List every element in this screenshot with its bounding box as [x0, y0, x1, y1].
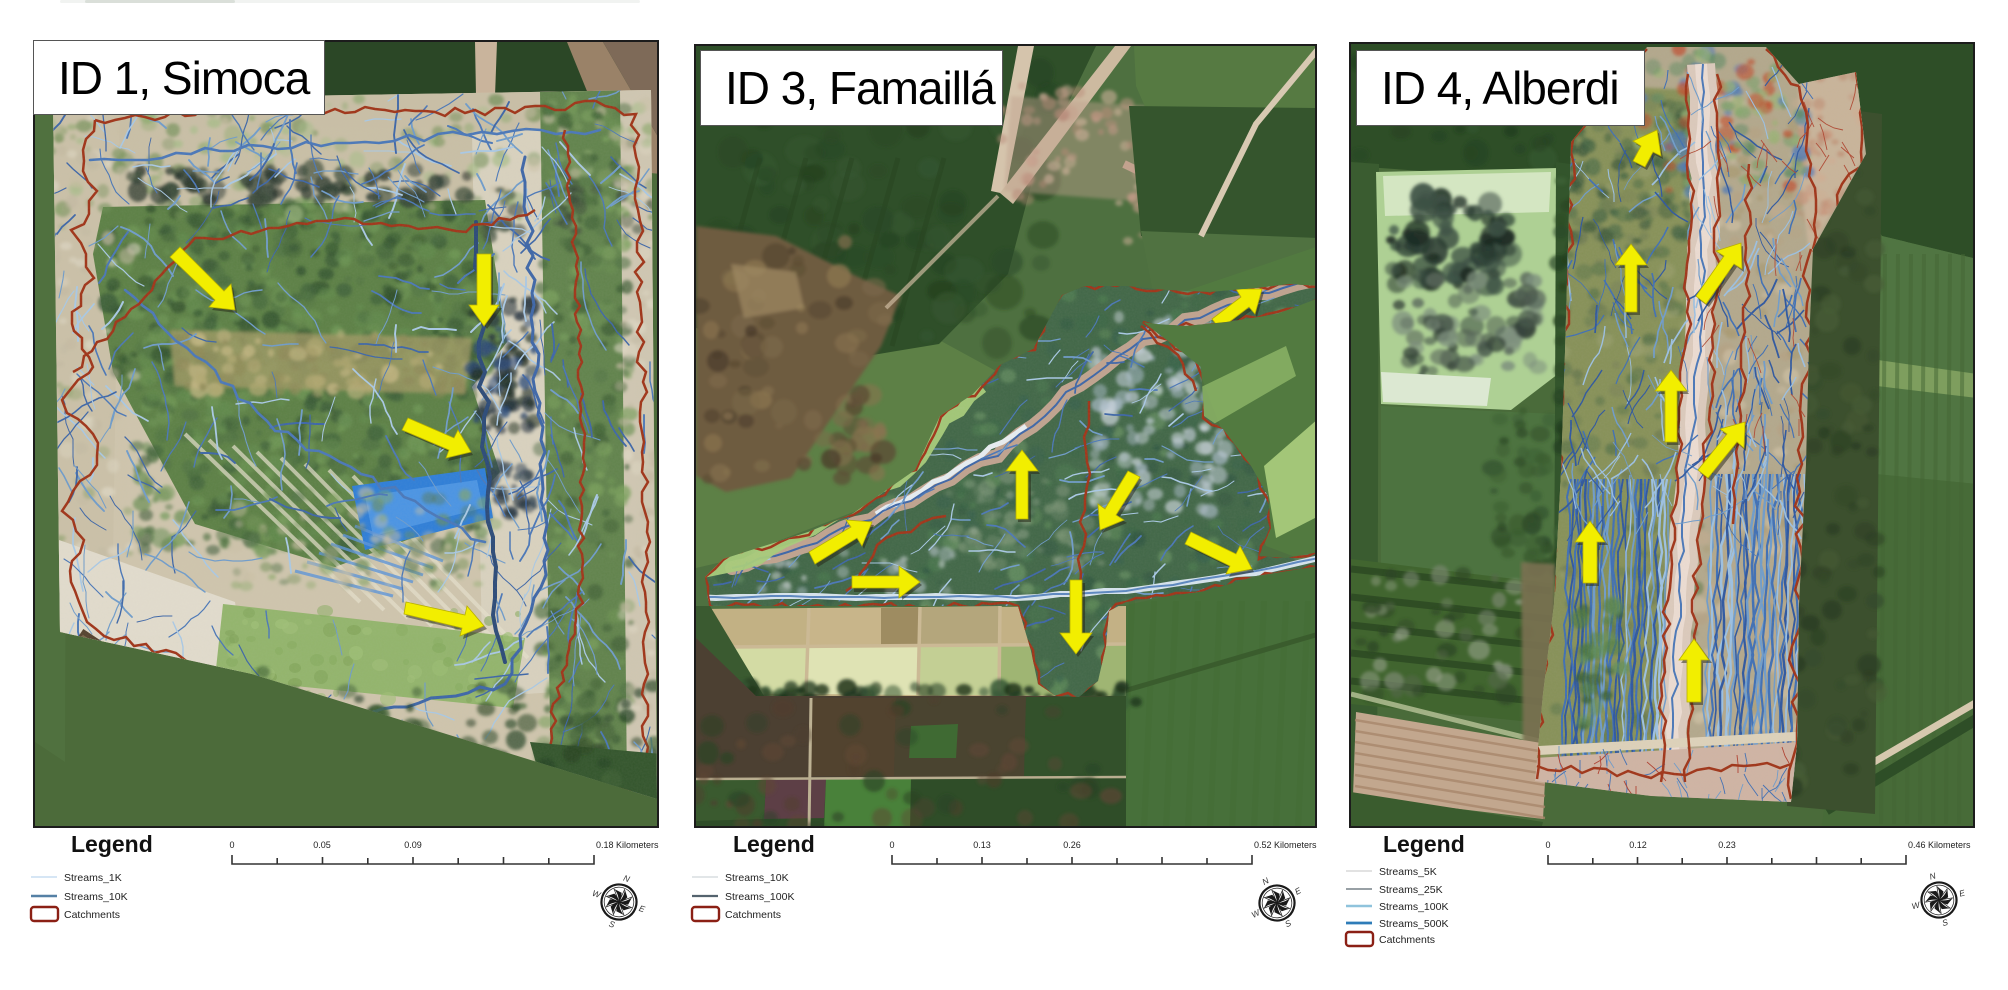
svg-text:Streams_5K: Streams_5K — [1379, 866, 1437, 878]
svg-text:Catchments: Catchments — [725, 909, 781, 921]
svg-text:Streams_1K: Streams_1K — [64, 872, 122, 884]
svg-text:0.52 Kilometers: 0.52 Kilometers — [1254, 840, 1317, 850]
svg-text:0: 0 — [1545, 840, 1550, 850]
svg-text:N: N — [1928, 870, 1937, 881]
svg-text:0: 0 — [229, 840, 234, 850]
svg-text:0.05: 0.05 — [313, 840, 331, 850]
svg-text:S: S — [1283, 918, 1293, 930]
svg-text:W: W — [591, 888, 603, 900]
svg-text:0.46 Kilometers: 0.46 Kilometers — [1908, 840, 1971, 850]
svg-text:Streams_10K: Streams_10K — [725, 872, 789, 884]
svg-text:S: S — [1941, 917, 1949, 928]
svg-text:0.23: 0.23 — [1718, 840, 1736, 850]
svg-text:0.12: 0.12 — [1629, 840, 1647, 850]
svg-text:N: N — [622, 873, 632, 885]
svg-text:0.13: 0.13 — [973, 840, 991, 850]
svg-text:Streams_100K: Streams_100K — [1379, 901, 1448, 913]
svg-text:N: N — [1260, 875, 1271, 887]
svg-text:0: 0 — [889, 840, 894, 850]
svg-text:Streams_500K: Streams_500K — [1379, 918, 1448, 930]
svg-text:E: E — [638, 903, 647, 914]
svg-text:Streams_10K: Streams_10K — [64, 891, 128, 903]
svg-text:Catchments: Catchments — [64, 909, 120, 921]
svg-text:Streams_25K: Streams_25K — [1379, 884, 1443, 896]
svg-text:Legend: Legend — [71, 831, 153, 857]
svg-text:E: E — [1293, 885, 1303, 897]
svg-text:0.26: 0.26 — [1063, 840, 1081, 850]
svg-text:0.09: 0.09 — [404, 840, 422, 850]
svg-text:0.18 Kilometers: 0.18 Kilometers — [596, 840, 659, 850]
svg-text:Catchments: Catchments — [1379, 934, 1435, 946]
svg-text:E: E — [1958, 887, 1966, 898]
svg-text:Streams_100K: Streams_100K — [725, 891, 794, 903]
svg-text:Legend: Legend — [1383, 831, 1465, 857]
svg-text:W: W — [1250, 907, 1263, 920]
svg-text:Legend: Legend — [733, 831, 815, 857]
svg-text:W: W — [1910, 899, 1921, 911]
svg-text:S: S — [608, 918, 617, 929]
